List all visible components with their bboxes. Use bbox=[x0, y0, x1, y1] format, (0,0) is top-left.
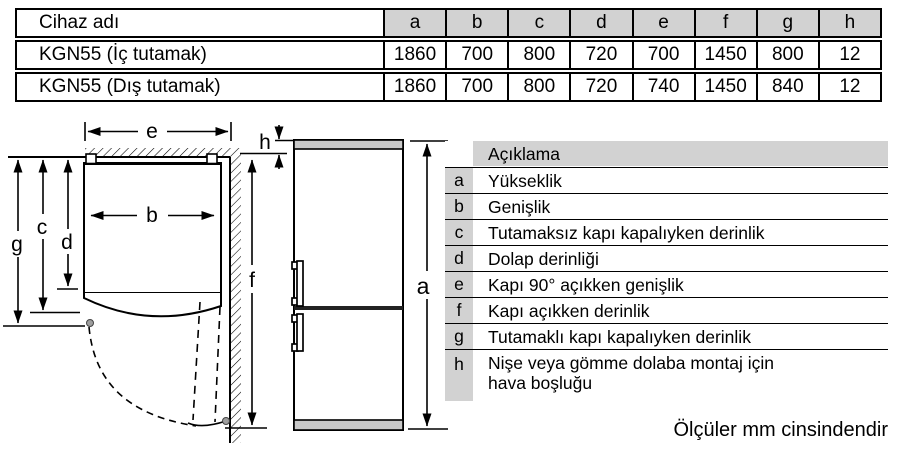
legend-text: Kapı açıkken derinlik bbox=[473, 298, 888, 323]
legend: Açıklama a Yükseklik b Genişlik c Tutama… bbox=[445, 141, 888, 401]
device-column-header: Cihaz adı bbox=[17, 10, 383, 36]
spec-table-header-row: Cihaz adı a b c d e f g h bbox=[15, 8, 882, 38]
dim-value-cell: 1450 bbox=[694, 42, 756, 68]
dim-header-h: h bbox=[818, 10, 880, 36]
legend-item: g Tutamaklı kapı kapalıyken derinlik bbox=[445, 323, 888, 349]
dim-value-cell: 700 bbox=[445, 42, 507, 68]
legend-item: e Kapı 90° açıkken genişlik bbox=[445, 271, 888, 297]
legend-item: c Tutamaksız kapı kapalıyken derinlik bbox=[445, 219, 888, 245]
hinge-block-icon bbox=[207, 154, 217, 164]
legend-key: a bbox=[445, 168, 473, 193]
legend-text: Genişlik bbox=[473, 194, 888, 219]
dim-header-c: c bbox=[507, 10, 569, 36]
legend-item: b Genişlik bbox=[445, 193, 888, 219]
legend-text: Kapı 90° açıkken genişlik bbox=[473, 272, 888, 297]
hinge-block-icon bbox=[86, 154, 96, 164]
dim-value-cell: 12 bbox=[818, 74, 880, 100]
dim-value-cell: 12 bbox=[818, 42, 880, 68]
legend-item: f Kapı açıkken derinlik bbox=[445, 297, 888, 323]
dim-header-f: f bbox=[694, 10, 756, 36]
dim-header-b: b bbox=[445, 10, 507, 36]
fridge-bottom-strip bbox=[294, 420, 403, 430]
table-row: KGN55 (Dış tutamak) 1860 700 800 720 740… bbox=[15, 72, 882, 102]
dim-value-cell: 800 bbox=[756, 42, 818, 68]
dim-value-cell: 800 bbox=[507, 74, 569, 100]
dimension-e bbox=[85, 122, 231, 141]
dim-label-e: e bbox=[146, 120, 158, 143]
dim-label-f: f bbox=[249, 269, 255, 292]
dim-value-cell: 1860 bbox=[383, 42, 445, 68]
dim-value-cell: 1860 bbox=[383, 74, 445, 100]
hinge-pin-icon bbox=[87, 320, 94, 327]
hinge-pin-icon bbox=[223, 418, 230, 425]
legend-key: g bbox=[445, 324, 473, 349]
device-name-cell: KGN55 (Dış tutamak) bbox=[17, 74, 383, 100]
dim-label-h: h bbox=[259, 131, 271, 154]
door-open-edge bbox=[193, 302, 200, 420]
legend-header-row: Açıklama bbox=[445, 141, 888, 166]
appliance-spec-sheet: { "table": { "device_column_header": "Ci… bbox=[0, 0, 900, 450]
dim-value-cell: 840 bbox=[756, 74, 818, 100]
legend-text: Nişe veya gömme dolaba montaj için hava … bbox=[473, 350, 788, 401]
fridge-top-view bbox=[84, 154, 221, 316]
legend-text: Yükseklik bbox=[473, 168, 888, 193]
dim-label-c: c bbox=[37, 216, 48, 239]
dim-value-cell: 700 bbox=[445, 74, 507, 100]
legend-key: h bbox=[445, 350, 473, 401]
door-open-bottom bbox=[188, 421, 226, 426]
dim-label-b: b bbox=[146, 204, 158, 227]
legend-key: f bbox=[445, 298, 473, 323]
fridge-top-strip bbox=[294, 140, 403, 149]
dim-value-cell: 740 bbox=[632, 74, 694, 100]
dim-value-cell: 1450 bbox=[694, 74, 756, 100]
legend-key: b bbox=[445, 194, 473, 219]
dim-value-cell: 700 bbox=[632, 42, 694, 68]
dim-header-g: g bbox=[756, 10, 818, 36]
dim-header-d: d bbox=[569, 10, 631, 36]
dim-value-cell: 800 bbox=[507, 42, 569, 68]
legend-key: c bbox=[445, 220, 473, 245]
legend-item: a Yükseklik bbox=[445, 167, 888, 193]
legend-text: Tutamaksız kapı kapalıyken derinlik bbox=[473, 220, 888, 245]
dim-label-g: g bbox=[11, 233, 23, 256]
legend-text: Tutamaklı kapı kapalıyken derinlik bbox=[473, 324, 888, 349]
fridge-front-view bbox=[292, 140, 403, 430]
legend-header-spacer bbox=[445, 141, 473, 166]
spec-table: Cihaz adı a b c d e f g h KGN55 (İç tuta… bbox=[15, 8, 882, 104]
legend-header: Açıklama bbox=[473, 141, 888, 166]
dimension-diagram: e h b g c d f bbox=[0, 115, 460, 450]
legend-item: h Nişe veya gömme dolaba montaj için hav… bbox=[445, 349, 888, 401]
table-row: KGN55 (İç tutamak) 1860 700 800 720 700 … bbox=[15, 40, 882, 70]
dimension-d bbox=[57, 160, 78, 289]
dim-label-d: d bbox=[61, 231, 73, 254]
legend-text: Dolap derinliği bbox=[473, 246, 888, 271]
dim-header-e: e bbox=[632, 10, 694, 36]
dim-value-cell: 720 bbox=[569, 42, 631, 68]
dim-label-a: a bbox=[417, 273, 430, 299]
door-swing bbox=[87, 302, 230, 426]
door-open-edge bbox=[215, 307, 220, 422]
device-name-cell: KGN55 (İç tutamak) bbox=[17, 42, 383, 68]
units-note: Ölçüler mm cinsindendir bbox=[673, 419, 888, 442]
legend-key: e bbox=[445, 272, 473, 297]
door-swing-arc bbox=[89, 327, 196, 426]
dim-value-cell: 720 bbox=[569, 74, 631, 100]
legend-key: d bbox=[445, 246, 473, 271]
legend-item: d Dolap derinliği bbox=[445, 245, 888, 271]
dim-header-a: a bbox=[383, 10, 445, 36]
